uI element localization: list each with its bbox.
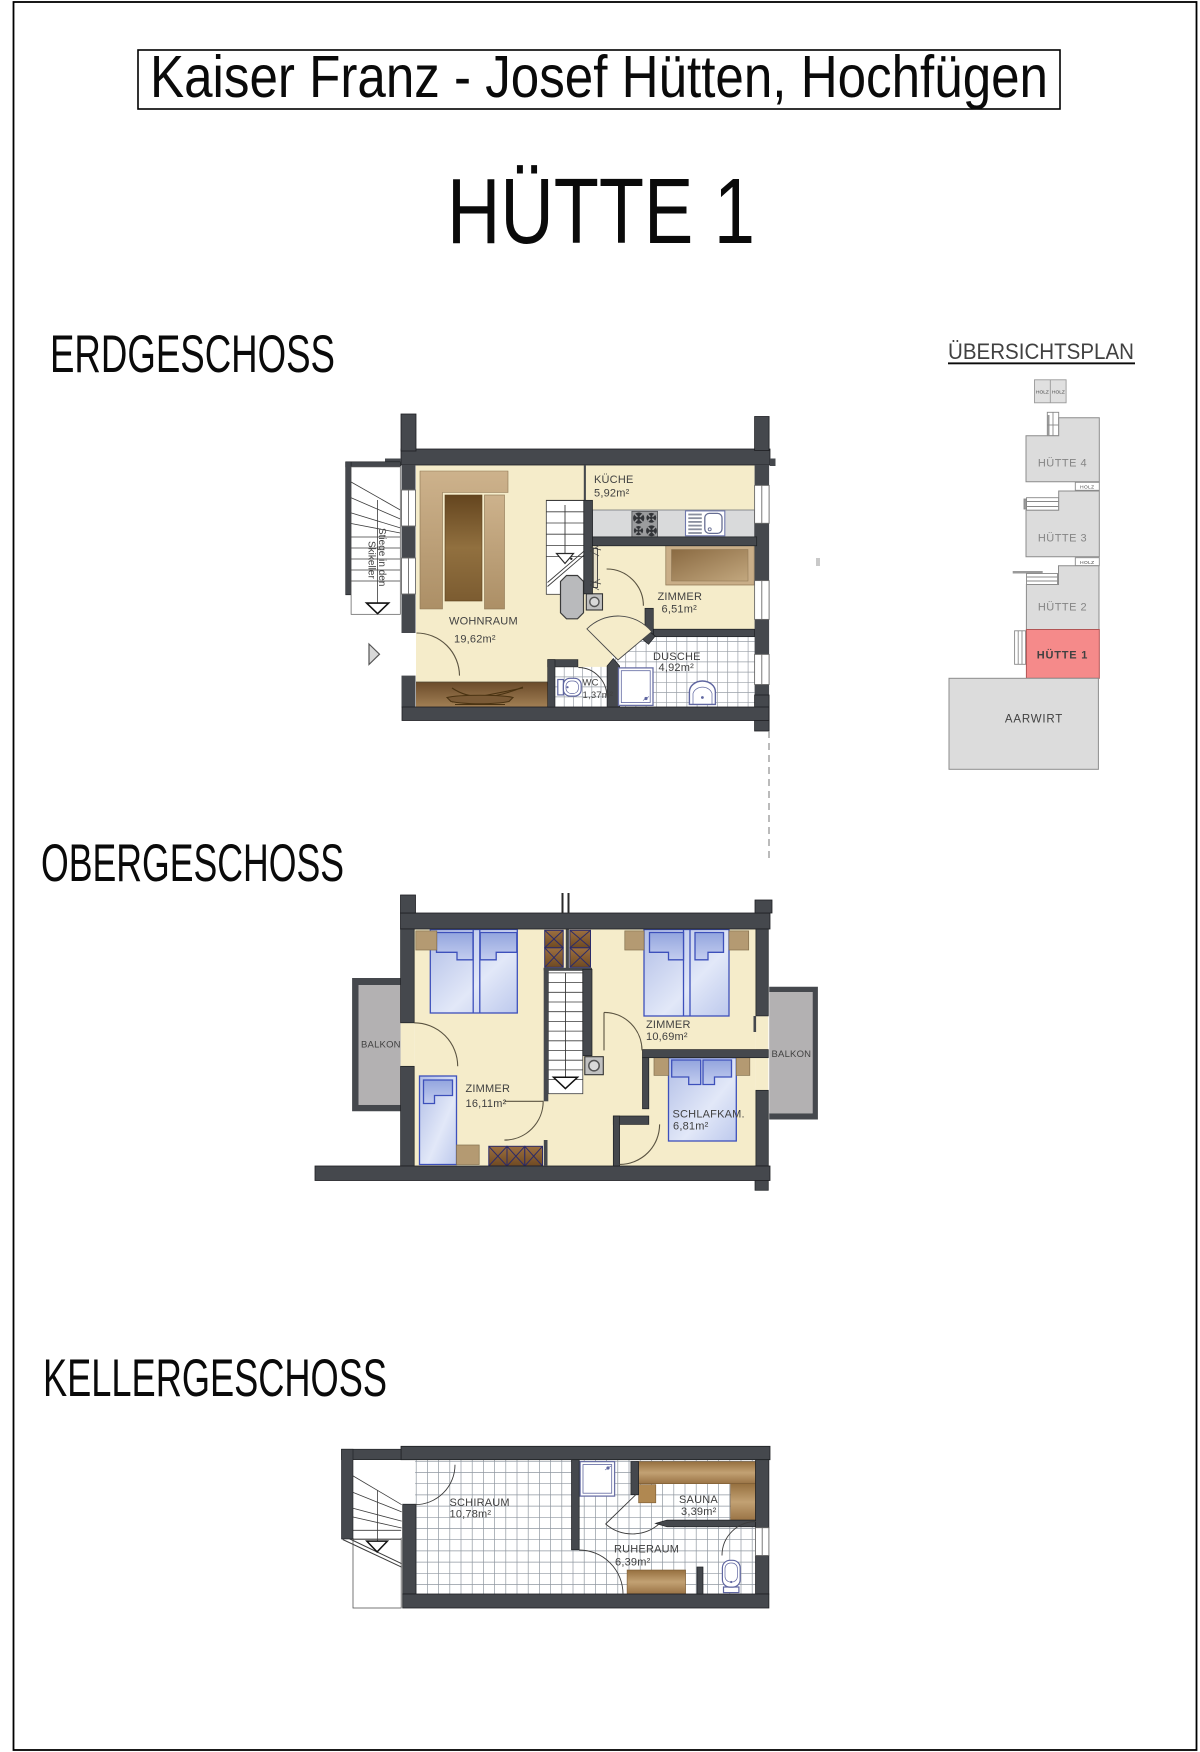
svg-text:6,51m²: 6,51m²	[662, 604, 698, 616]
svg-text:KELLERGESCHOSS: KELLERGESCHOSS	[43, 1349, 387, 1408]
svg-text:HOLZ: HOLZ	[1080, 560, 1094, 566]
svg-text:ERDGESCHOSS: ERDGESCHOSS	[50, 325, 335, 384]
svg-text:6,39m²: 6,39m²	[615, 1557, 651, 1569]
svg-text:10,69m²: 10,69m²	[646, 1031, 688, 1043]
svg-text:HOLZ: HOLZ	[1036, 389, 1049, 395]
svg-text:OBERGESCHOSS: OBERGESCHOSS	[41, 834, 344, 893]
svg-text:ÜBERSICHTSPLAN: ÜBERSICHTSPLAN	[948, 339, 1134, 364]
svg-text:16,11m²: 16,11m²	[466, 1098, 507, 1110]
svg-text:HÜTTE 4: HÜTTE 4	[1038, 458, 1087, 470]
svg-text:Stiege in den: Stiege in den	[376, 528, 387, 586]
svg-text:6,81m²: 6,81m²	[673, 1121, 709, 1133]
svg-text:BALKON: BALKON	[361, 1040, 401, 1051]
svg-text:ZIMMER: ZIMMER	[466, 1083, 511, 1095]
svg-text:SCHLAFKAM.: SCHLAFKAM.	[673, 1109, 745, 1121]
svg-text:BALKON: BALKON	[772, 1049, 812, 1060]
svg-text:Skikeller: Skikeller	[366, 541, 377, 579]
svg-text:3,39m²: 3,39m²	[681, 1506, 717, 1518]
svg-text:HOLZ: HOLZ	[1080, 484, 1094, 490]
svg-text:ZIMMER: ZIMMER	[658, 591, 703, 603]
svg-text:WOHNRAUM: WOHNRAUM	[449, 616, 518, 628]
svg-text:Kaiser Franz - Josef Hütten, H: Kaiser Franz - Josef Hütten, Hochfügen	[150, 44, 1048, 110]
svg-text:1,37m²: 1,37m²	[583, 690, 614, 701]
svg-text:AARWIRT: AARWIRT	[1005, 714, 1063, 726]
svg-text:4,92m²: 4,92m²	[659, 662, 695, 674]
svg-text:HÜTTE 1: HÜTTE 1	[1037, 649, 1088, 662]
svg-text:ZIMMER: ZIMMER	[646, 1019, 691, 1031]
svg-text:10,78m²: 10,78m²	[450, 1509, 492, 1521]
svg-text:5,92m²: 5,92m²	[594, 488, 630, 500]
svg-text:SAUNA: SAUNA	[679, 1494, 718, 1506]
svg-text:RUHERAUM: RUHERAUM	[614, 1544, 679, 1556]
svg-text:HÜTTE 2: HÜTTE 2	[1038, 602, 1087, 614]
svg-text:HÜTTE 3: HÜTTE 3	[1038, 533, 1087, 545]
svg-text:HÜTTE 1: HÜTTE 1	[447, 159, 755, 263]
svg-text:SCHIRAUM: SCHIRAUM	[450, 1497, 510, 1509]
svg-text:19,62m²: 19,62m²	[454, 634, 496, 646]
svg-text:KÜCHE: KÜCHE	[594, 474, 634, 486]
svg-text:HOLZ: HOLZ	[1052, 389, 1065, 395]
svg-text:WC: WC	[583, 678, 599, 689]
